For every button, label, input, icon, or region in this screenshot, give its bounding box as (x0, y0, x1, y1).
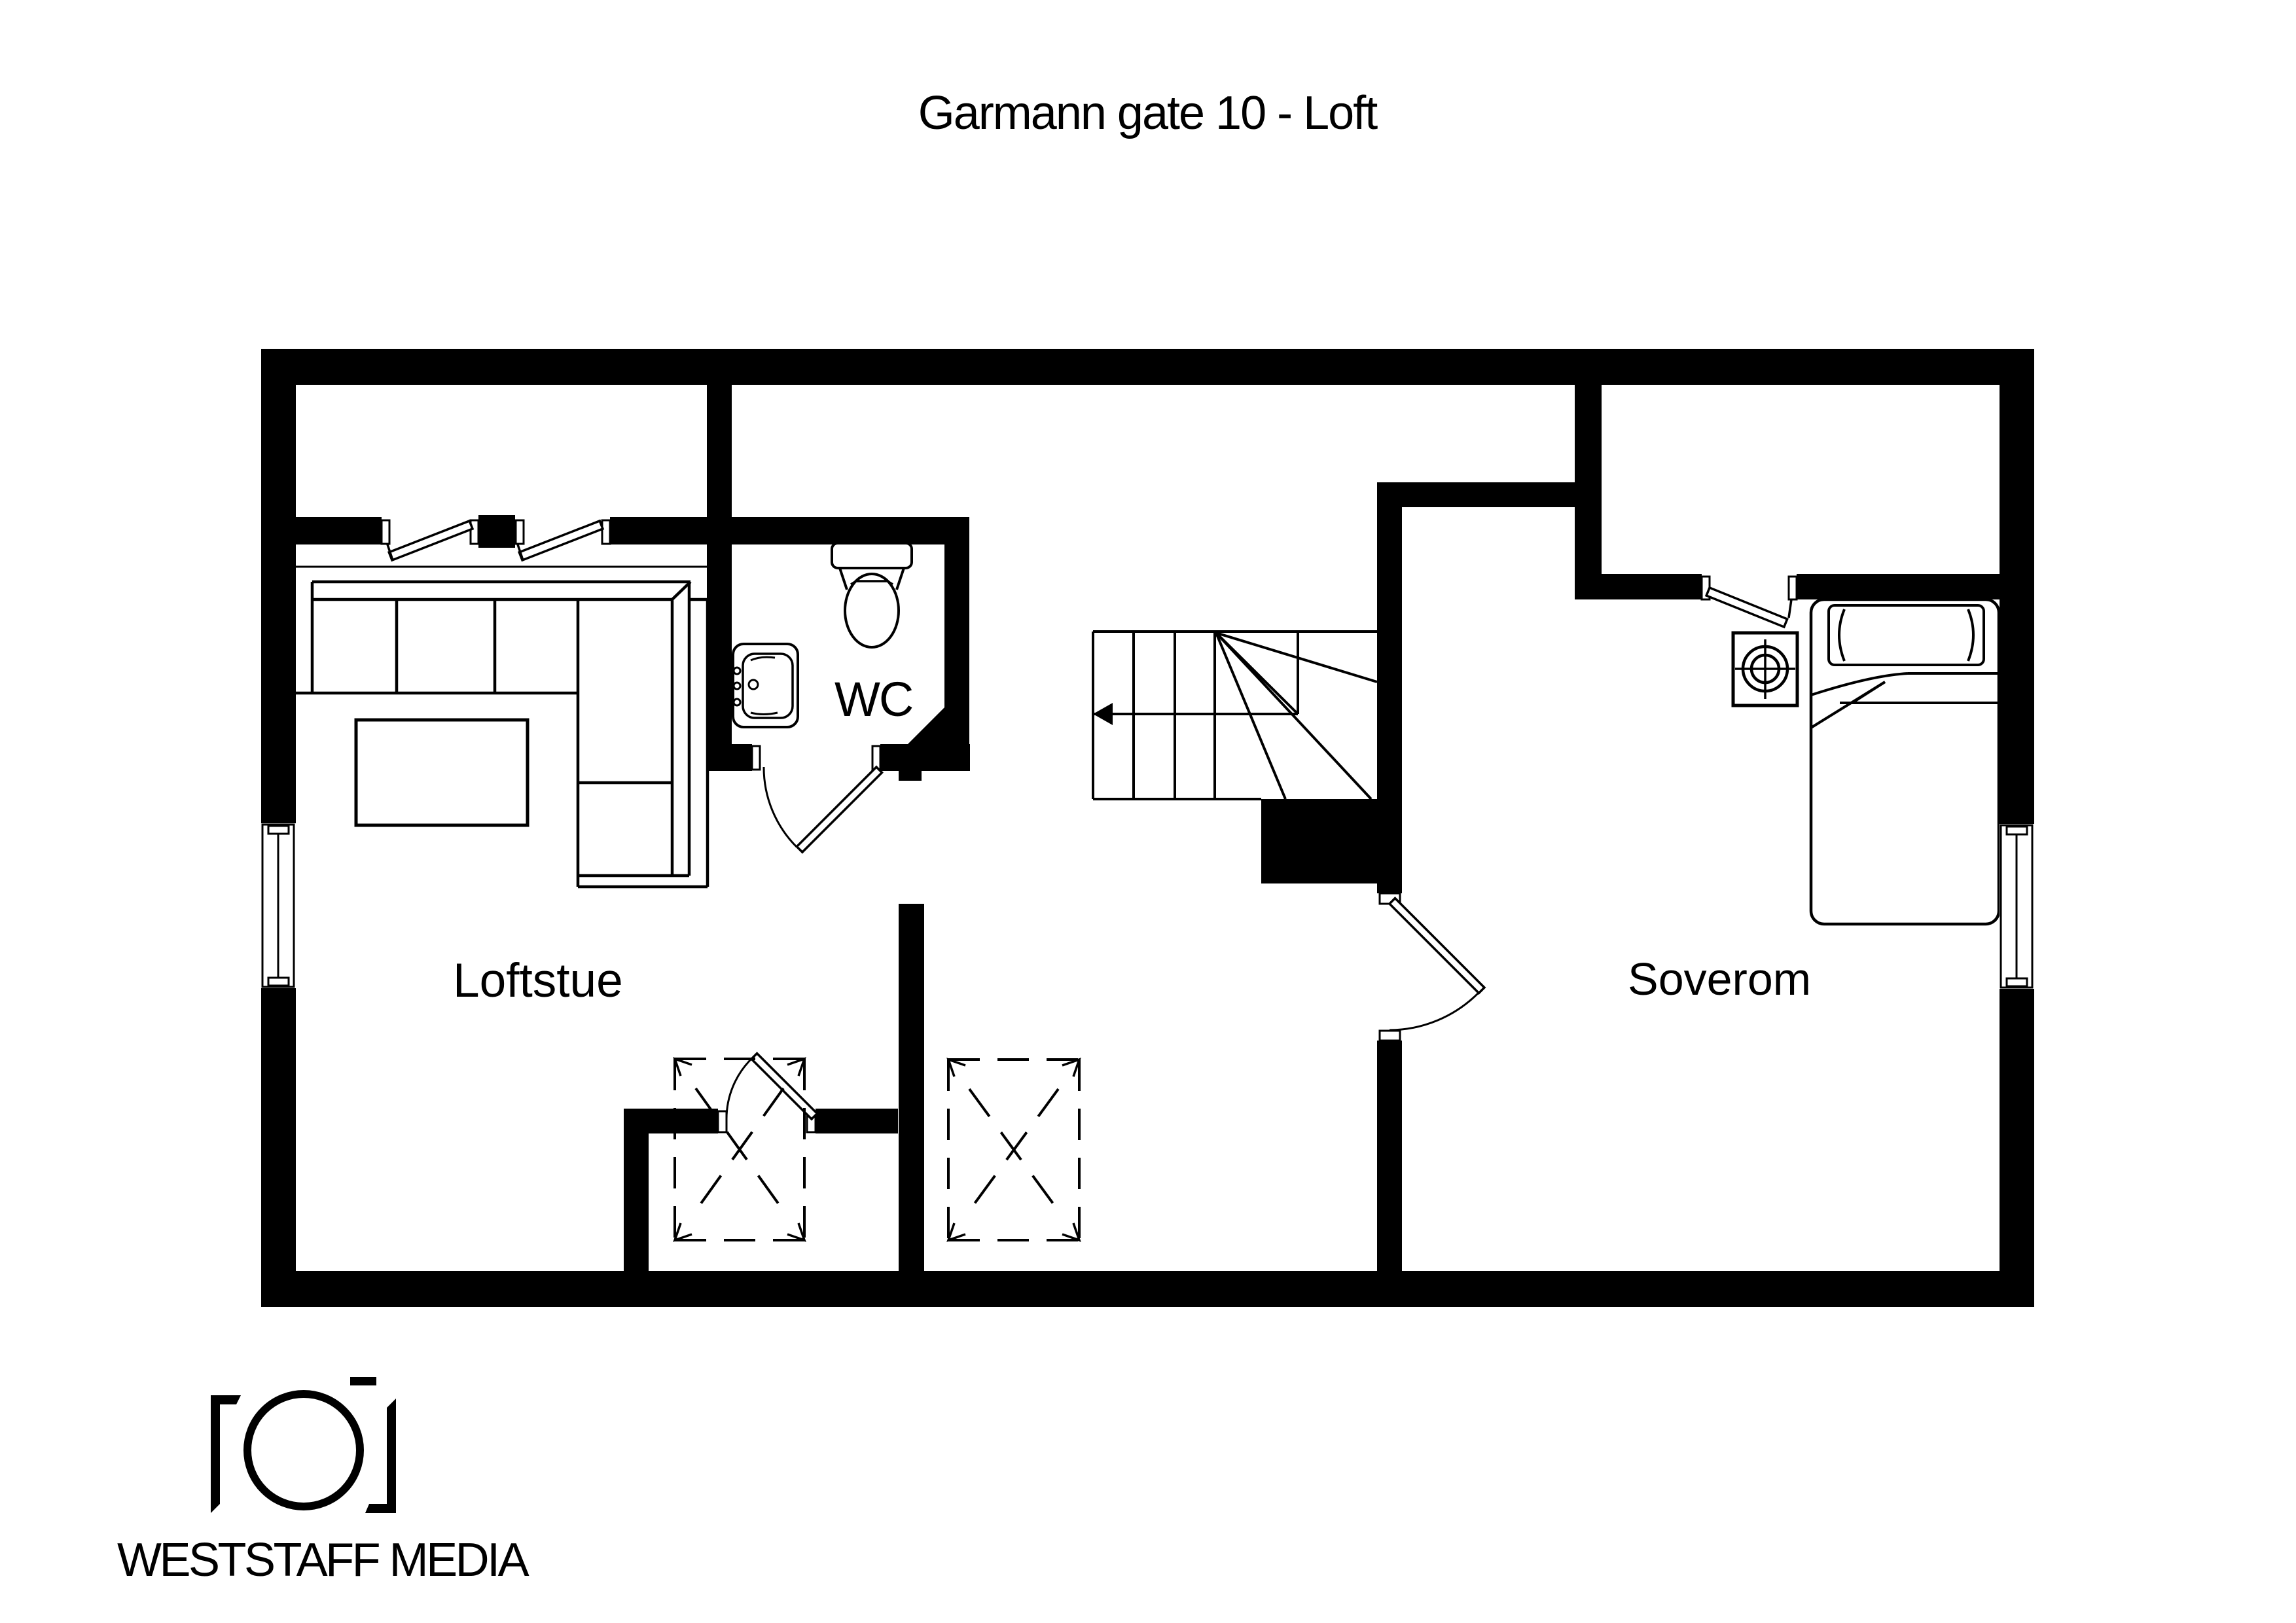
svg-text:Soverom: Soverom (1628, 954, 1811, 1005)
svg-text:WC: WC (834, 672, 912, 726)
svg-text:WESTSTAFF MEDIA: WESTSTAFF MEDIA (117, 1534, 529, 1586)
svg-text:Garmann gate 10 - Loft: Garmann gate 10 - Loft (918, 87, 1378, 139)
svg-text:Loftstue: Loftstue (453, 954, 623, 1007)
